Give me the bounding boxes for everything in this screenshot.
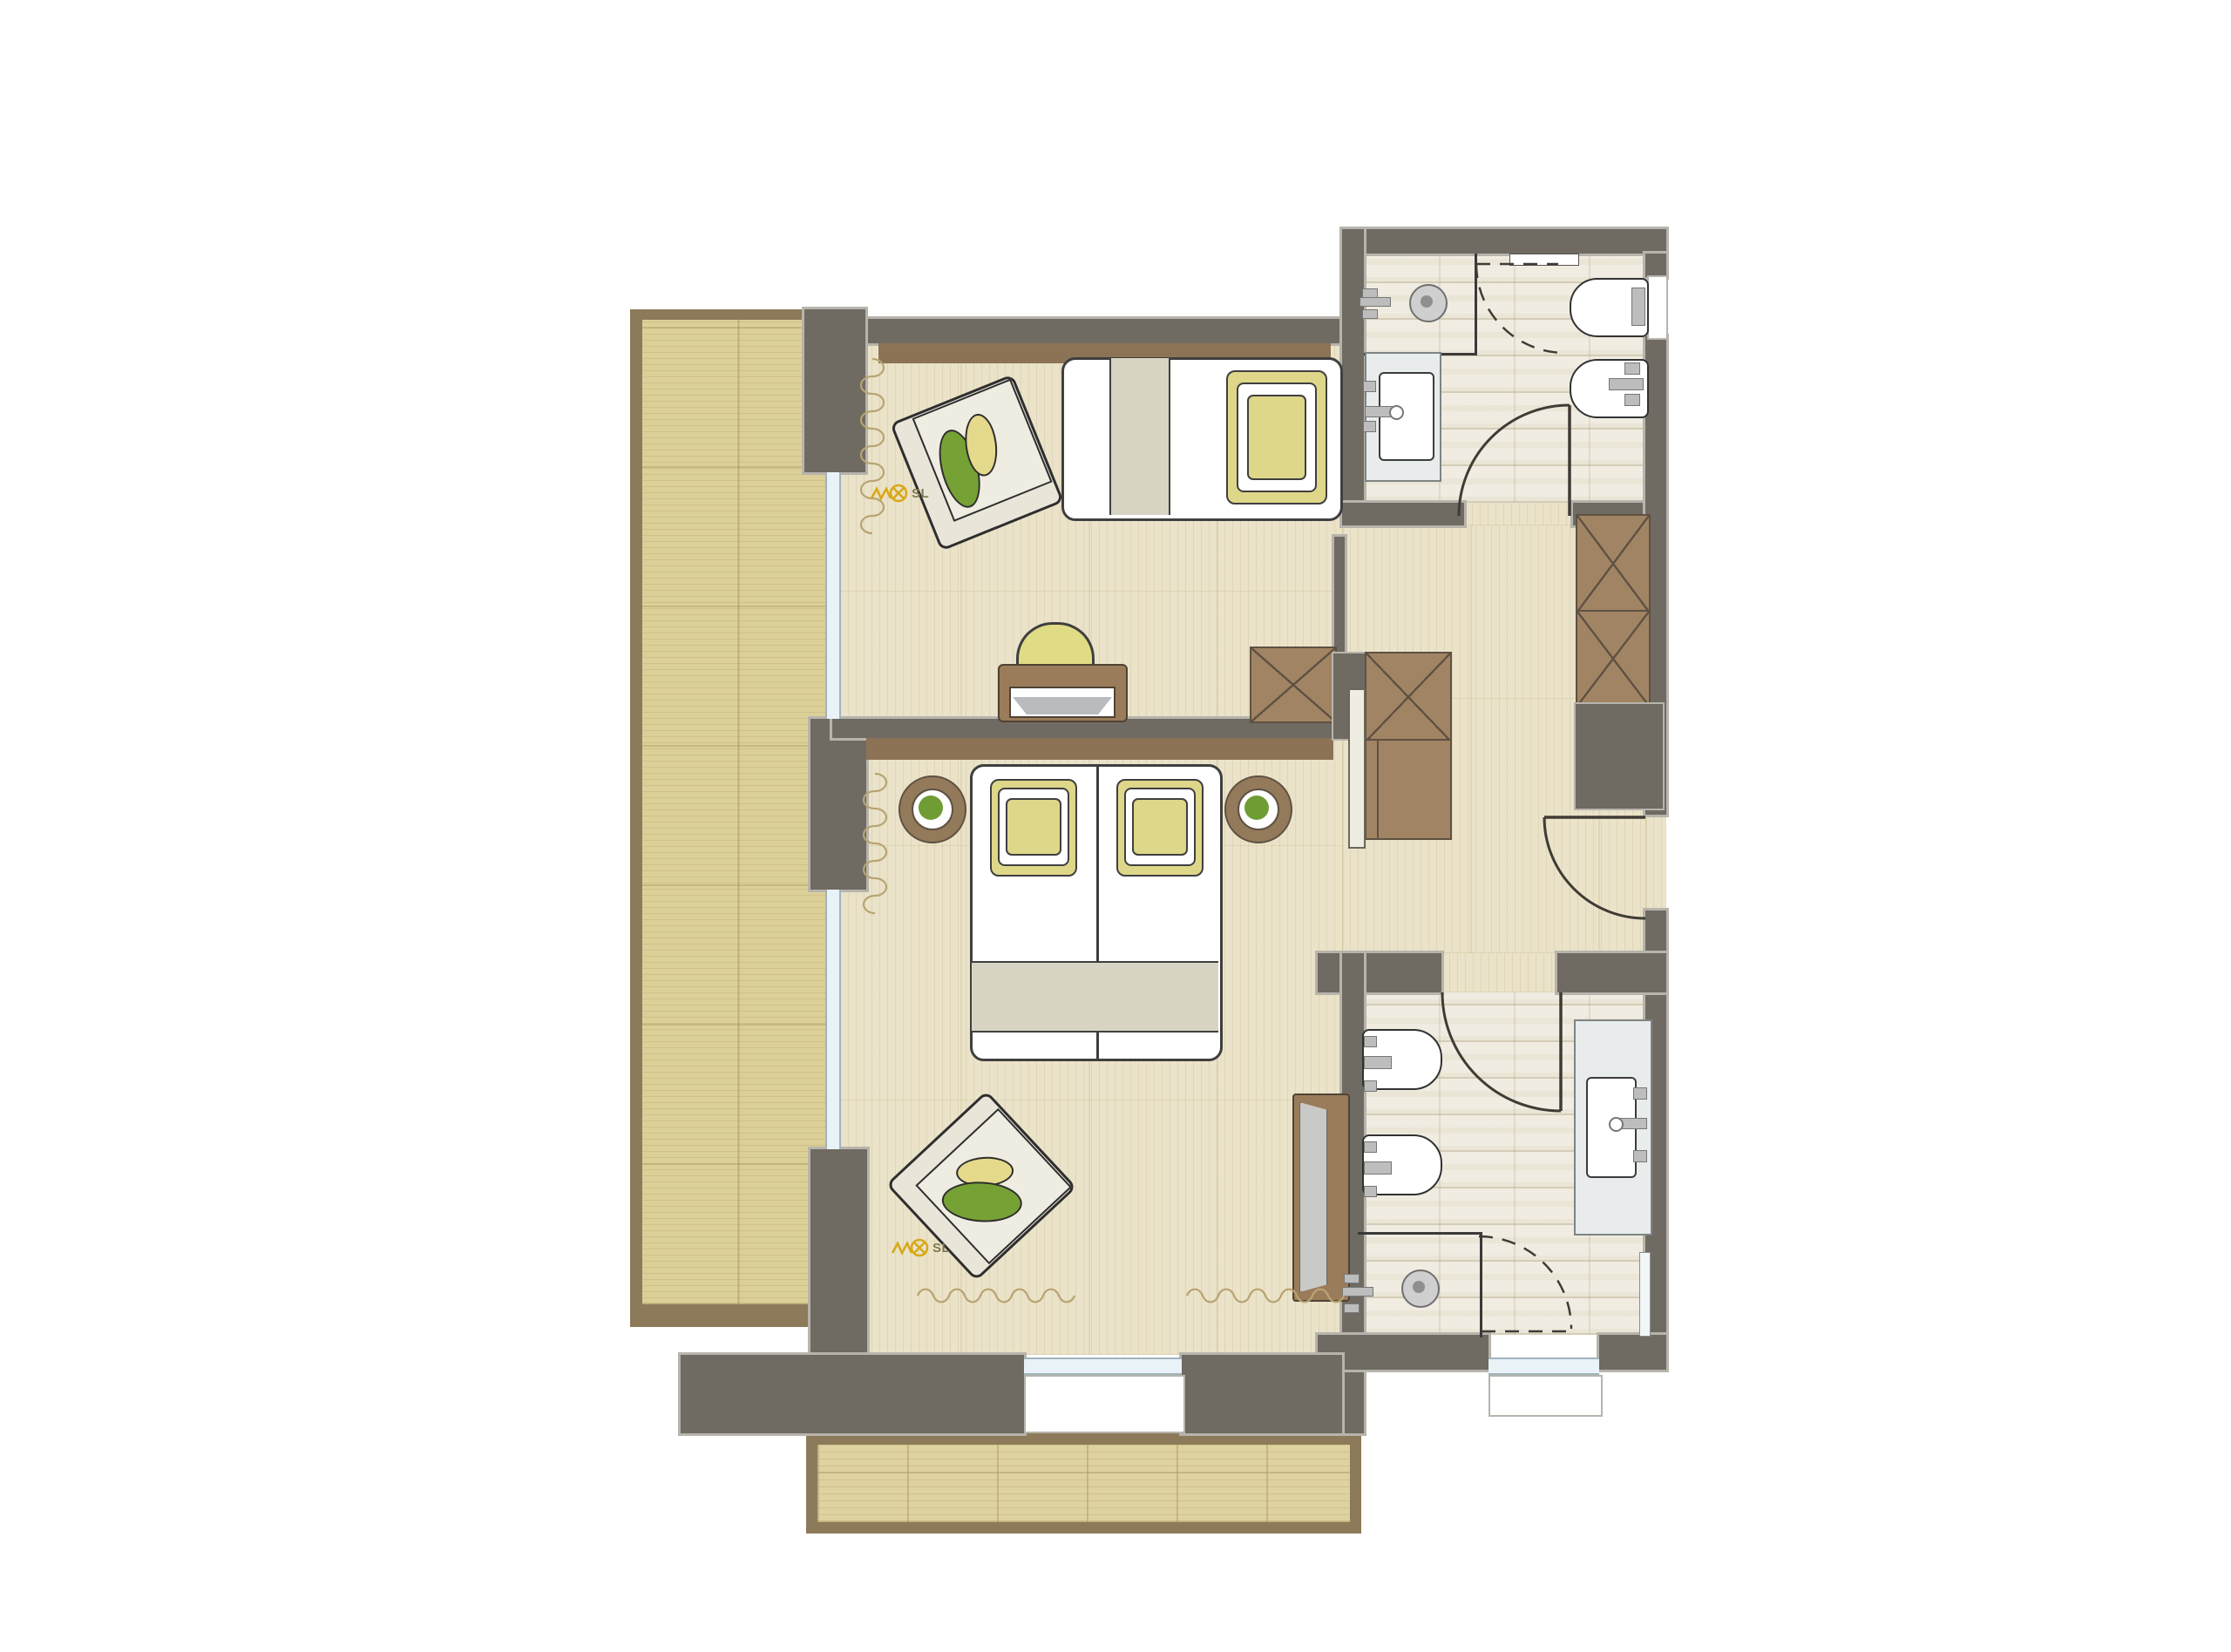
floor-patch-top-bath-door bbox=[1464, 503, 1573, 525]
wall-pier-1 bbox=[804, 309, 865, 472]
toilet-bottom-bar bbox=[1364, 1056, 1392, 1069]
single-bed bbox=[1061, 357, 1343, 521]
shower-bottom-bar bbox=[1342, 1287, 1373, 1297]
vanity-top-ctrl-b bbox=[1363, 421, 1376, 432]
window-bath-top bbox=[1647, 275, 1668, 340]
shower-top-bar bbox=[1360, 297, 1391, 307]
sideboard-panel bbox=[1299, 1102, 1327, 1292]
hall-wardrobe-a bbox=[1576, 514, 1651, 613]
sideboard bbox=[1292, 1093, 1350, 1302]
double-bed-pillow-right-inner bbox=[1132, 798, 1188, 856]
bidet-bottom-tap-b bbox=[1364, 1186, 1377, 1197]
balcony-bottom bbox=[806, 1433, 1361, 1534]
vanity-bottom-ctrl-b bbox=[1633, 1150, 1647, 1162]
bedside-table-left-green bbox=[919, 796, 943, 820]
floor-plan: SL SL bbox=[0, 0, 2231, 1652]
window-west-glass-1 bbox=[825, 472, 841, 719]
floor-patch-entry-door bbox=[1645, 815, 1666, 911]
mirror-bottom bbox=[1639, 1252, 1651, 1337]
wardrobe-box-3-divider bbox=[1377, 741, 1379, 838]
window-south-glass bbox=[1024, 1357, 1182, 1375]
window-bath-bottom-glass bbox=[1488, 1357, 1599, 1375]
wall-bath-bottom-south-right bbox=[1599, 1335, 1666, 1370]
bidet-top-bar bbox=[1609, 378, 1644, 390]
wall-south-left bbox=[681, 1355, 1024, 1433]
wall-right-a bbox=[1645, 254, 1666, 277]
toilet-top-tank bbox=[1631, 288, 1645, 326]
sliding-door-panel bbox=[1348, 688, 1366, 849]
wardrobe-box-2 bbox=[1365, 652, 1452, 742]
wall-bath-top-north bbox=[1342, 229, 1666, 254]
desk-tray-inner bbox=[1013, 697, 1112, 714]
hall-dark-block bbox=[1576, 704, 1663, 809]
bidet-top-tap-a bbox=[1624, 362, 1640, 375]
window-bath-bottom-recess bbox=[1488, 1375, 1603, 1417]
toilet-bottom-tap-a bbox=[1364, 1036, 1377, 1047]
vanity-bottom-knob bbox=[1609, 1117, 1624, 1132]
hall-wardrobe-b bbox=[1576, 610, 1651, 708]
wardrobe-box-3 bbox=[1365, 739, 1452, 840]
toilet-bottom-tap-b bbox=[1364, 1080, 1377, 1092]
shower-bottom-valve-b bbox=[1344, 1303, 1360, 1313]
shower-top-valve-b bbox=[1362, 309, 1378, 319]
wall-bath-bottom-south-left bbox=[1318, 1335, 1488, 1370]
wall-south-right bbox=[1182, 1355, 1342, 1433]
vanity-bottom-ctrl-a bbox=[1633, 1087, 1647, 1100]
floor-patch-bottom-bath-door bbox=[1441, 953, 1557, 992]
shower-top-shelf bbox=[1509, 254, 1579, 266]
wardrobe-box-1 bbox=[1250, 647, 1337, 723]
wall-bath-bottom-north-left bbox=[1318, 953, 1441, 992]
double-bed-pillow-left-inner bbox=[1006, 798, 1061, 856]
label-sl-lower: SL bbox=[932, 1241, 950, 1256]
wall-stub-sliding bbox=[1334, 537, 1345, 653]
wall-bath-top-south-left bbox=[1342, 503, 1464, 525]
bidet-top-tap-b bbox=[1624, 394, 1640, 406]
bidet-bottom-bar bbox=[1364, 1161, 1392, 1175]
vanity-top-knob bbox=[1389, 405, 1404, 420]
shower-bottom-valve-a bbox=[1344, 1274, 1360, 1283]
bedside-table-right-green bbox=[1244, 796, 1269, 820]
double-bed-blanket bbox=[972, 961, 1218, 1032]
single-bed-pillow-inner bbox=[1247, 395, 1306, 480]
single-bed-blanket bbox=[1109, 358, 1170, 515]
shower-top-head-center bbox=[1421, 295, 1433, 308]
double-bed bbox=[970, 764, 1223, 1061]
wall-bath-top-left bbox=[1342, 229, 1364, 525]
vanity-top-ctrl-a bbox=[1363, 381, 1376, 392]
wall-pier-3 bbox=[810, 1149, 867, 1359]
wall-top-upper-room bbox=[861, 319, 1342, 343]
window-south-recess bbox=[1024, 1375, 1185, 1433]
wall-pier-2 bbox=[810, 719, 866, 890]
desk-tray bbox=[1009, 687, 1115, 718]
window-west-glass-2 bbox=[825, 890, 841, 1149]
headboard-trim-double-bed bbox=[866, 738, 1333, 760]
wall-bath-bottom-north-right bbox=[1557, 953, 1666, 992]
shower-bottom-head-center bbox=[1413, 1281, 1425, 1293]
bidet-bottom-tap-a bbox=[1364, 1141, 1377, 1153]
label-sl-upper: SL bbox=[912, 486, 929, 501]
